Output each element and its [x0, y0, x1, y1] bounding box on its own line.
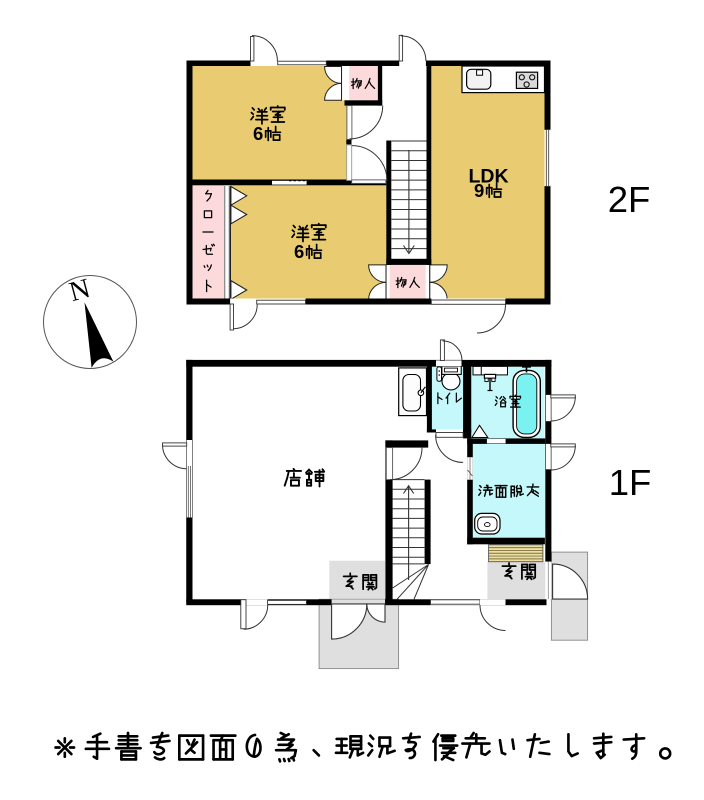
svg-text:6: 6	[253, 123, 263, 144]
svg-text:6: 6	[294, 241, 304, 262]
svg-text:9: 9	[474, 180, 484, 201]
svg-text:1F: 1F	[609, 462, 652, 503]
svg-text:2F: 2F	[608, 179, 651, 220]
